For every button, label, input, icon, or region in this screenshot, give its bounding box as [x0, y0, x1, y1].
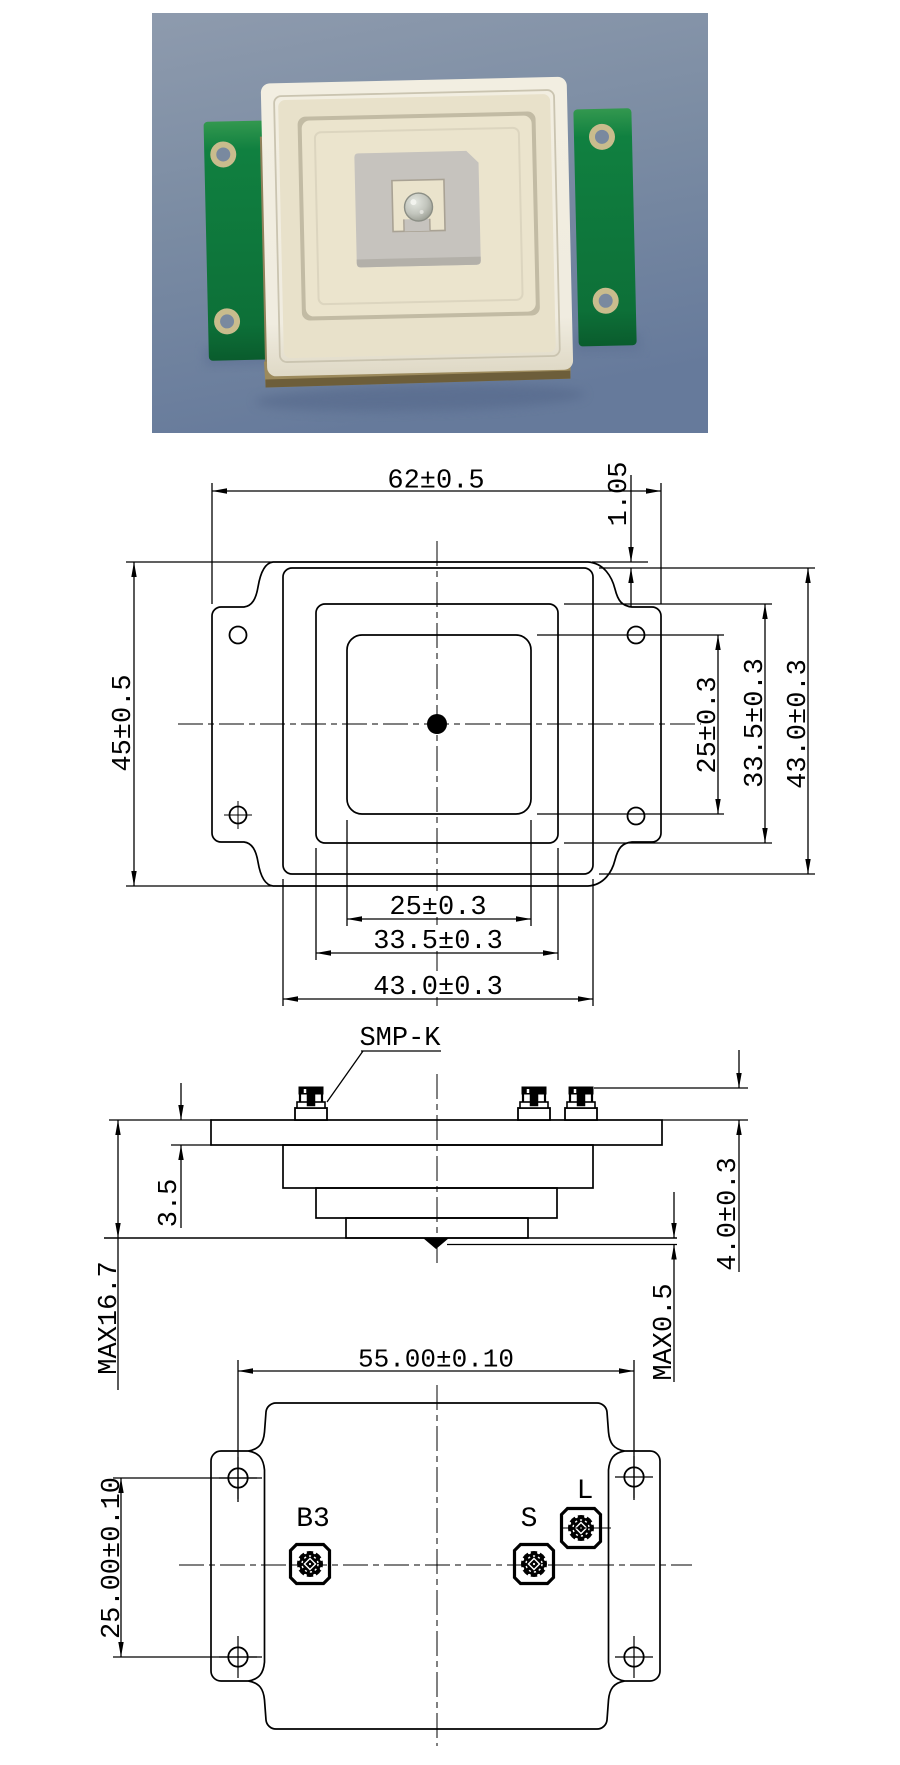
svg-text:SMP-K: SMP-K — [359, 1024, 441, 1054]
svg-text:62±0.5: 62±0.5 — [387, 467, 484, 497]
svg-text:L: L — [577, 1476, 594, 1507]
svg-text:25±0.3: 25±0.3 — [694, 676, 724, 773]
svg-text:33.5±0.3: 33.5±0.3 — [741, 658, 771, 788]
svg-text:S: S — [521, 1504, 538, 1535]
svg-text:45±0.5: 45±0.5 — [109, 674, 139, 771]
svg-text:4.0±0.3: 4.0±0.3 — [714, 1157, 744, 1270]
svg-text:B3: B3 — [296, 1504, 330, 1535]
svg-text:MAX16.7: MAX16.7 — [95, 1261, 125, 1374]
svg-text:43.0±0.3: 43.0±0.3 — [373, 973, 503, 1003]
svg-text:33.5±0.3: 33.5±0.3 — [373, 927, 503, 957]
svg-text:43.0±0.3: 43.0±0.3 — [784, 659, 814, 789]
svg-text:3.5: 3.5 — [155, 1179, 185, 1228]
svg-text:MAX0.5: MAX0.5 — [650, 1283, 680, 1380]
svg-text:1.05: 1.05 — [605, 462, 635, 527]
svg-text:25.00±0.10: 25.00±0.10 — [98, 1477, 128, 1639]
svg-text:55.00±0.10: 55.00±0.10 — [358, 1345, 514, 1375]
svg-text:25±0.3: 25±0.3 — [389, 893, 486, 923]
